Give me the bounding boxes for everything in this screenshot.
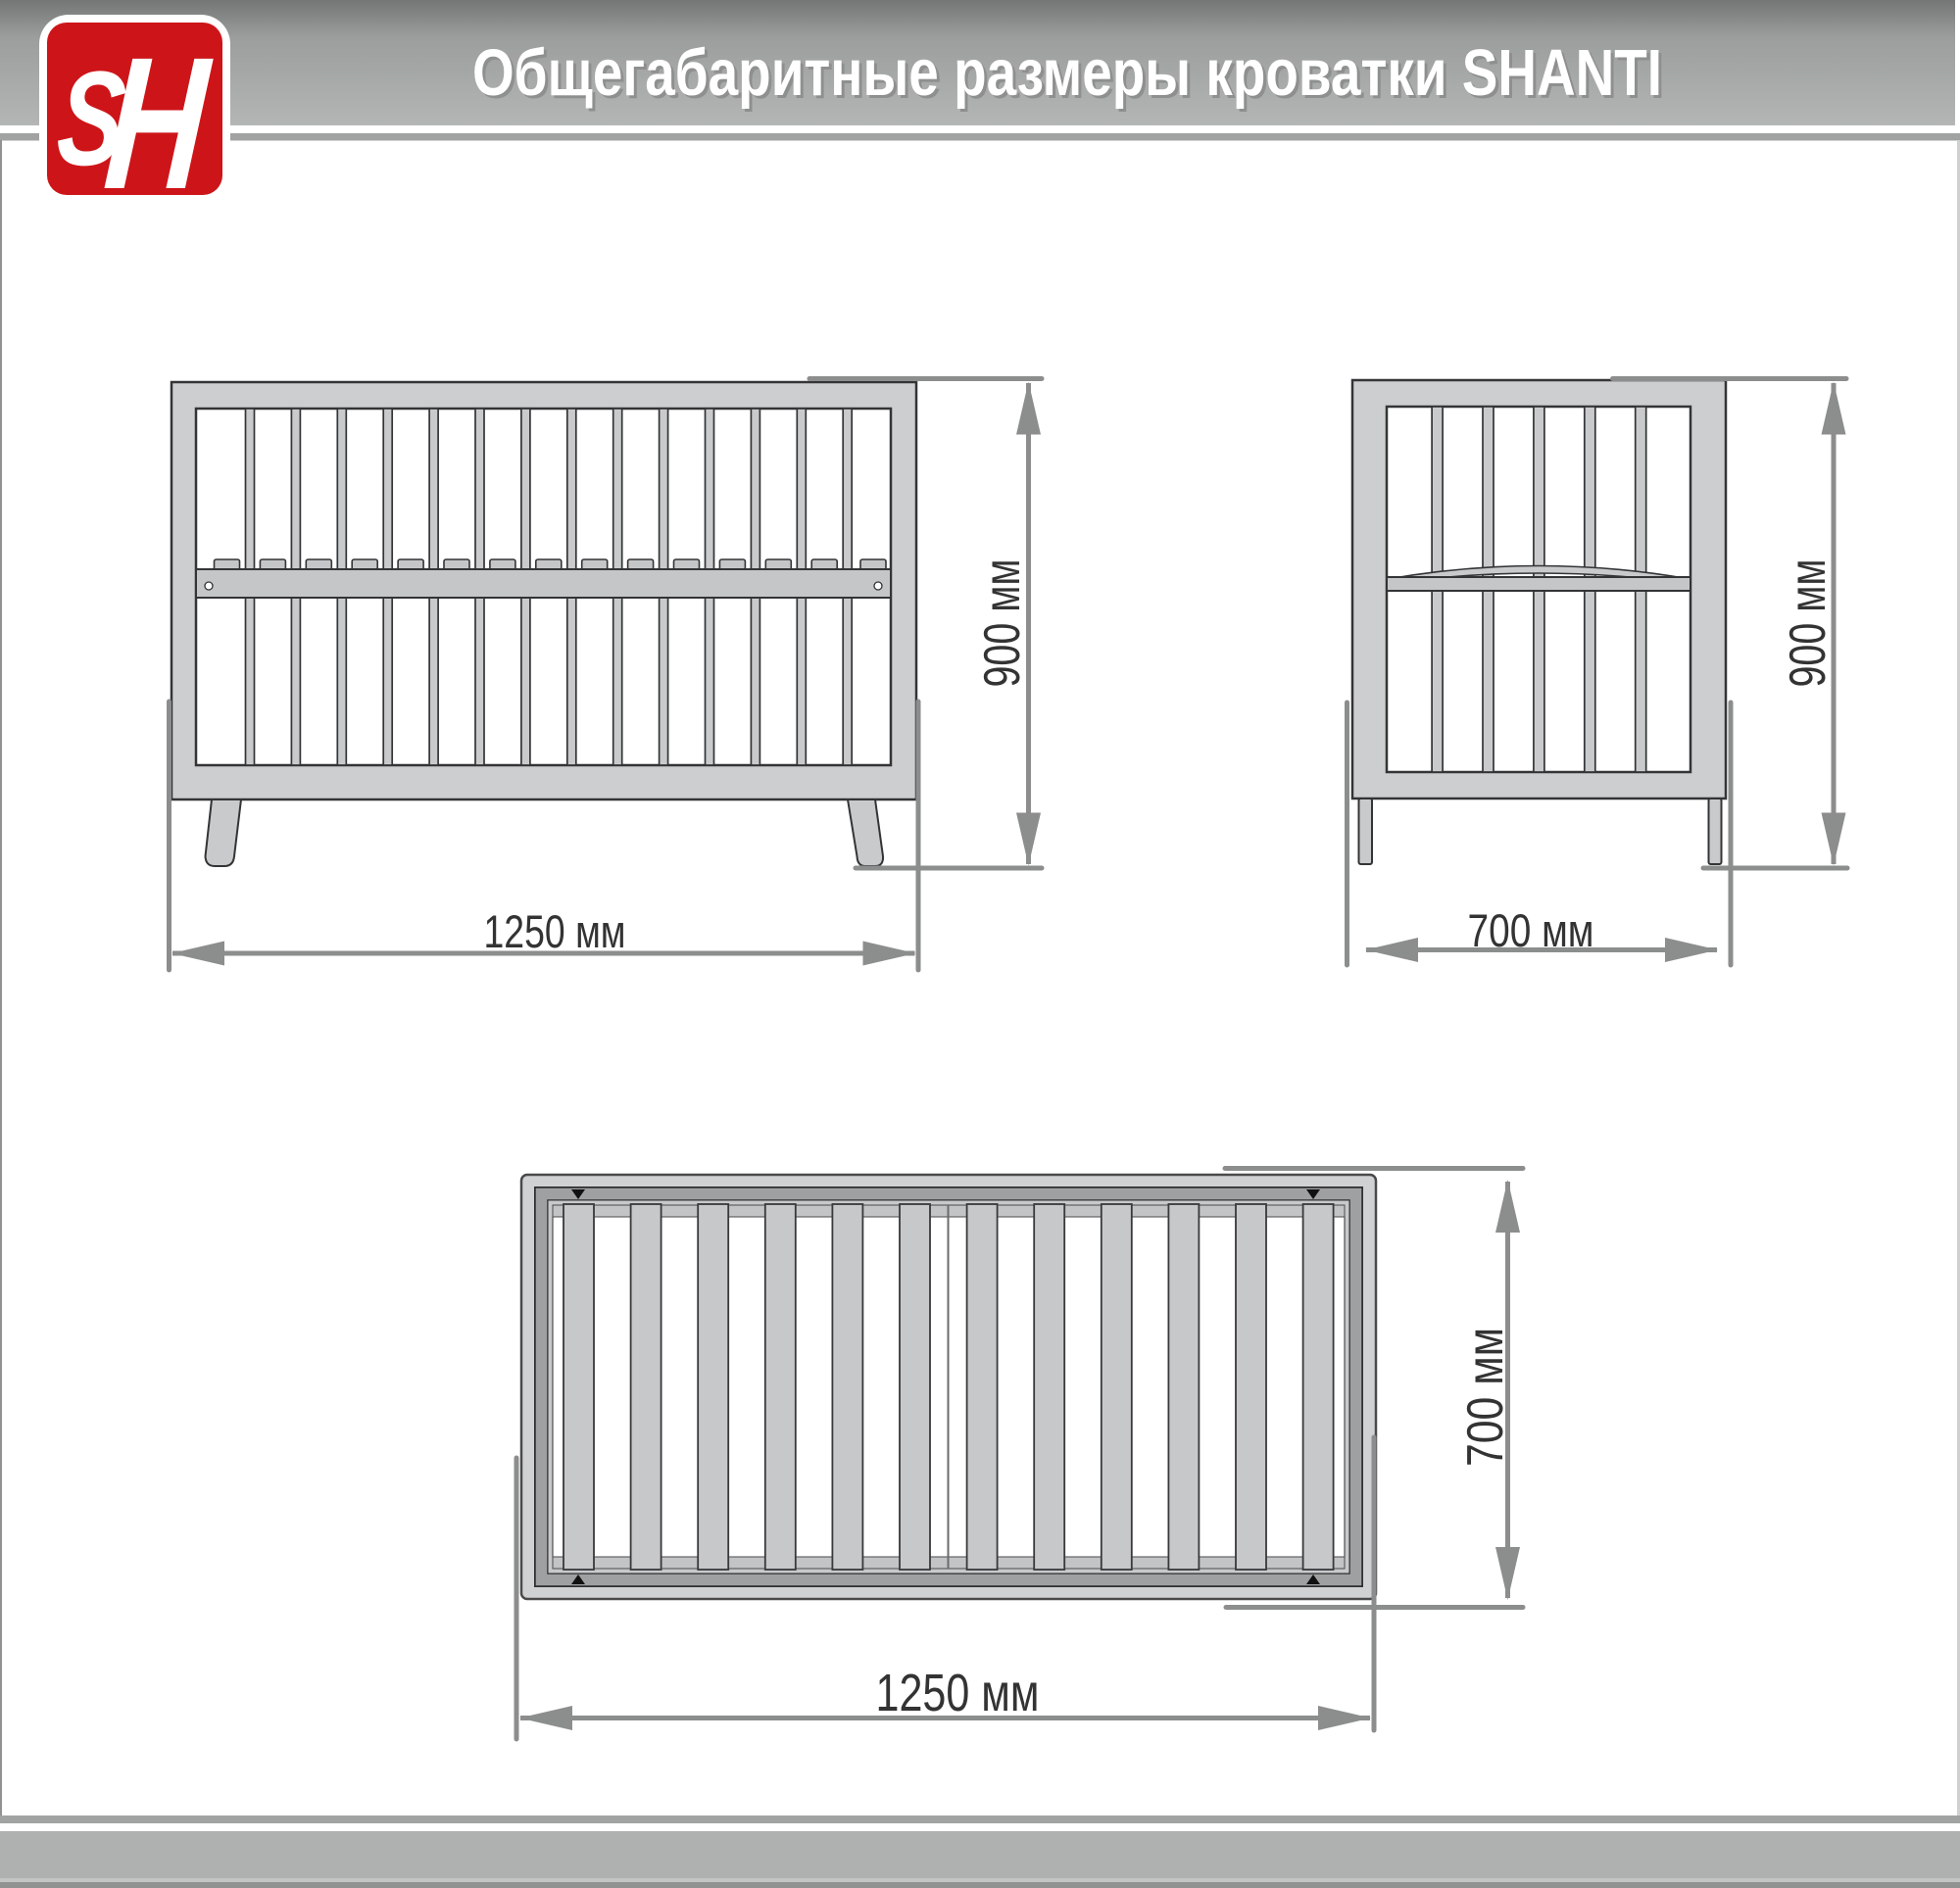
svg-text:700 мм: 700 мм (1468, 904, 1594, 956)
svg-text:1250 мм: 1250 мм (876, 1664, 1040, 1722)
svg-text:H: H (99, 19, 217, 228)
svg-text:Общегабаритные размеры кроватк: Общегабаритные размеры кроватки SHANTI (472, 36, 1662, 110)
svg-text:900 мм: 900 мм (1780, 559, 1837, 688)
svg-text:900 мм: 900 мм (974, 559, 1031, 688)
svg-text:1250 мм: 1250 мм (484, 905, 626, 957)
svg-text:700 мм: 700 мм (1457, 1328, 1514, 1467)
